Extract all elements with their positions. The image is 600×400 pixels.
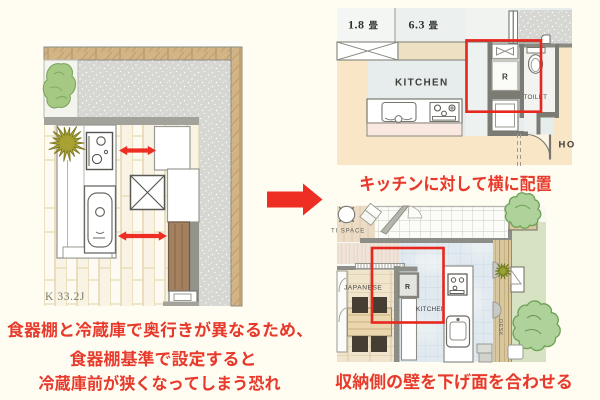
svg-text:JAPANESE: JAPANESE [344, 285, 382, 292]
svg-text:DESK: DESK [497, 319, 503, 336]
svg-text:KITCHEN: KITCHEN [416, 306, 446, 313]
svg-text:K 33.2J: K 33.2J [45, 291, 85, 303]
svg-text:R: R [405, 284, 410, 291]
svg-text:TOILET: TOILET [524, 94, 548, 101]
svg-text:1.8: 1.8 [348, 18, 365, 32]
svg-text:6.3: 6.3 [409, 18, 426, 32]
svg-text:TI SPACE: TI SPACE [331, 229, 365, 235]
svg-text:R: R [502, 73, 508, 82]
svg-text:HO: HO [559, 140, 576, 151]
svg-text:KITCHEN: KITCHEN [395, 78, 449, 89]
